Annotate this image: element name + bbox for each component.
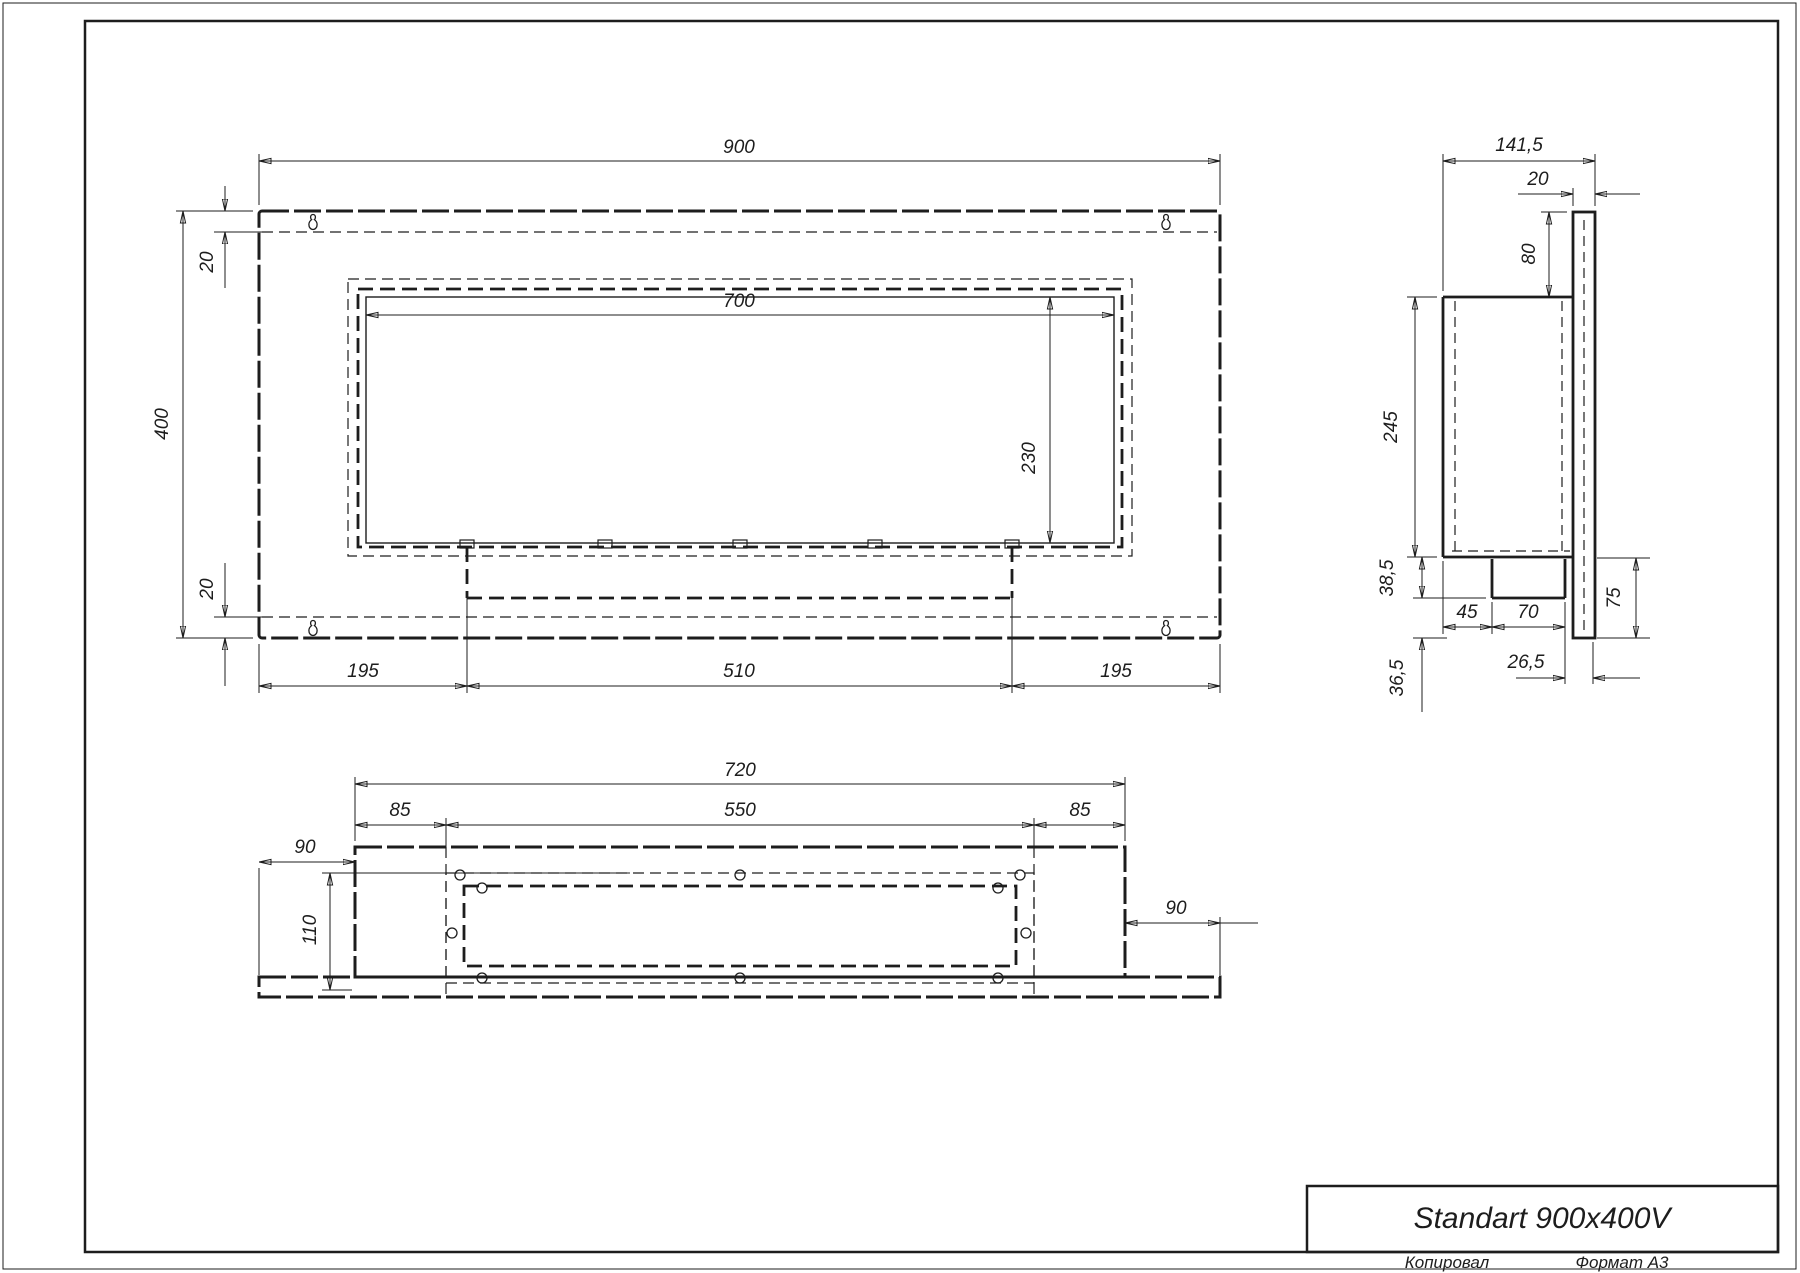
- bottom-view: 720 85 550 85 90 110: [259, 760, 1258, 997]
- dim-side-45-70: 45 70: [1443, 561, 1565, 684]
- dim-label: 38,5: [1377, 559, 1398, 596]
- dim-label: 900: [723, 137, 755, 158]
- footer-format-label: Формат А3: [1575, 1253, 1669, 1272]
- glass-frame-hidden: [358, 289, 1122, 547]
- dim-label: 85: [389, 800, 411, 821]
- side-burner-box: [1492, 559, 1565, 598]
- dim-label: 26,5: [1507, 652, 1545, 673]
- dim-label: 75: [1604, 587, 1625, 609]
- dim-label: 195: [347, 661, 379, 682]
- dim-label: 230: [1019, 442, 1040, 475]
- dim-front-230: 230: [1019, 297, 1050, 543]
- bottom-burner-hidden: [464, 886, 1016, 966]
- dim-front-195-510-195: 195 510 195: [259, 598, 1220, 693]
- dim-front-900: 900: [259, 137, 1220, 205]
- keyhole-icon: [309, 621, 317, 636]
- title-block: Standart 900x400V Копировал Формат А3: [1307, 1186, 1778, 1272]
- dim-label: 36,5: [1387, 659, 1408, 696]
- bottom-wall-panel: [259, 977, 1220, 997]
- dim-label: 20: [1526, 169, 1549, 190]
- dim-label: 400: [152, 408, 173, 440]
- dim-bottom-90-right: 90: [1125, 898, 1258, 975]
- front-burner-tray: [460, 540, 1019, 598]
- burner-flange-tabs: [460, 540, 1019, 548]
- dim-side-26-5: 26,5: [1507, 642, 1640, 684]
- dim-label: 70: [1517, 602, 1539, 623]
- dim-label: 720: [724, 760, 756, 781]
- dim-label: 550: [724, 800, 756, 821]
- keyhole-icon: [1162, 621, 1170, 636]
- dim-label: 85: [1069, 800, 1091, 821]
- dim-side-80: 80: [1519, 212, 1567, 297]
- bottom-body-outline: [355, 847, 1125, 977]
- dim-front-20-bottom: 20: [197, 563, 262, 686]
- keyhole-icon: [309, 215, 317, 230]
- dim-front-700: 700: [366, 291, 1114, 315]
- dim-label: 20: [197, 251, 218, 274]
- dim-bottom-85-550-85: 85 550 85: [355, 800, 1125, 997]
- dim-label: 110: [300, 914, 321, 945]
- dim-side-38-5: 38,5: [1377, 557, 1486, 598]
- dim-bottom-90-left: 90: [259, 837, 355, 975]
- glass-frame-outer-hidden: [348, 279, 1132, 556]
- front-body-outline: [259, 211, 1220, 638]
- dim-side-20: 20: [1518, 169, 1640, 206]
- page-edge: [3, 3, 1796, 1269]
- dim-label: 195: [1100, 661, 1132, 682]
- drawing-sheet: 900 400 20 20 700: [0, 0, 1800, 1273]
- front-view: 900 400 20 20 700: [152, 137, 1220, 693]
- drawing-title: Standart 900x400V: [1414, 1202, 1674, 1235]
- dim-label: 700: [723, 291, 755, 312]
- keyhole-slots: [309, 215, 1170, 636]
- dim-label: 45: [1456, 602, 1478, 623]
- page-frame: [3, 3, 1796, 1269]
- dim-label: 141,5: [1495, 135, 1543, 156]
- drawing-canvas: 900 400 20 20 700: [0, 0, 1800, 1273]
- dim-label: 90: [1165, 898, 1187, 919]
- dim-label: 90: [294, 837, 316, 858]
- glass-opening: [366, 297, 1114, 543]
- dim-front-20-top: 20: [197, 186, 262, 288]
- footer-copied-label: Копировал: [1405, 1253, 1490, 1272]
- dim-label: 510: [723, 661, 755, 682]
- dim-side-75: 75: [1597, 558, 1650, 638]
- dim-label: 80: [1519, 243, 1540, 265]
- dim-side-36-5: 36,5: [1387, 638, 1447, 712]
- dim-front-400: 400: [152, 211, 253, 638]
- dim-label: 20: [197, 578, 218, 601]
- keyhole-icon: [1162, 215, 1170, 230]
- dim-label: 245: [1381, 411, 1402, 444]
- side-view: 141,5 20 80 245 38,5: [1377, 135, 1650, 712]
- dim-side-245: 245: [1381, 297, 1437, 557]
